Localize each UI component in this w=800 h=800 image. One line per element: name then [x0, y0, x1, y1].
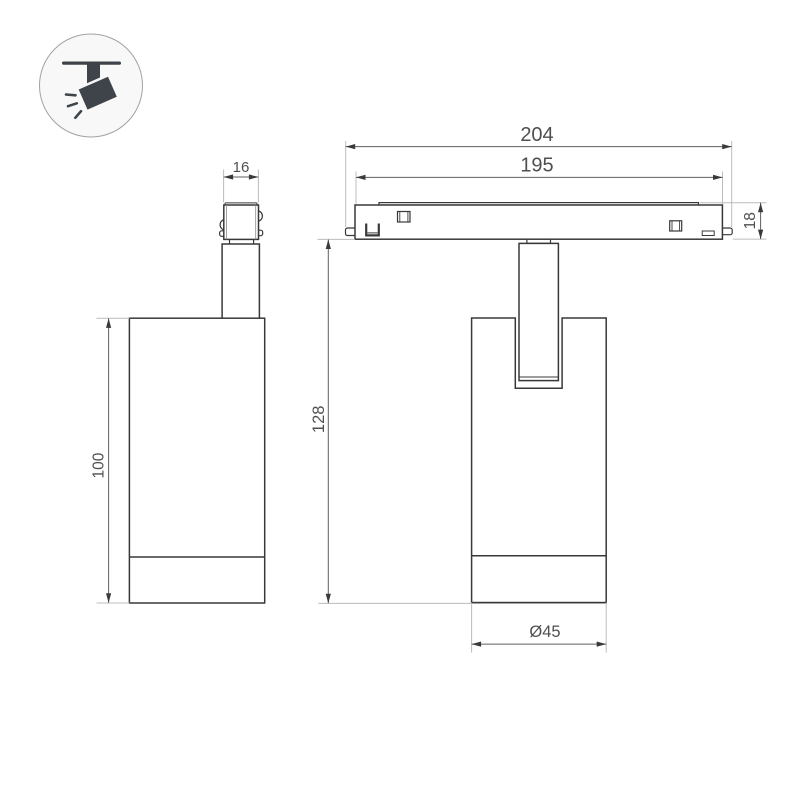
svg-text:16: 16: [233, 159, 250, 176]
svg-text:100: 100: [91, 452, 108, 478]
svg-text:Ø45: Ø45: [529, 623, 560, 641]
svg-text:128: 128: [310, 406, 328, 434]
svg-text:195: 195: [520, 155, 553, 177]
svg-text:204: 204: [520, 124, 553, 146]
svg-text:18: 18: [742, 212, 759, 229]
